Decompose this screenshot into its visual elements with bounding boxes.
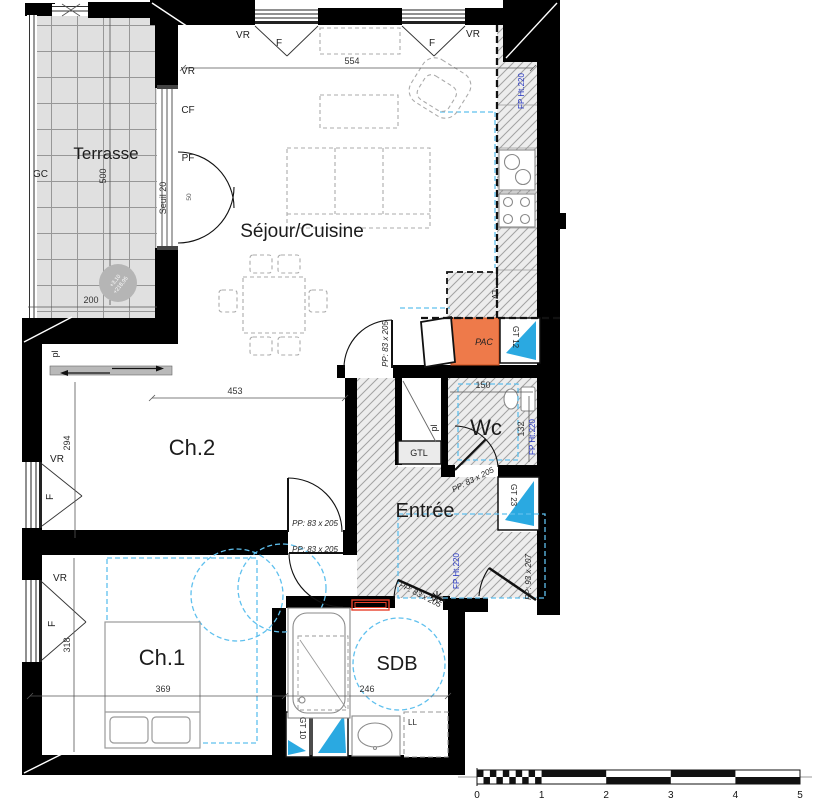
bathtub: [288, 608, 350, 718]
seuil-label: Seuil 20: [158, 182, 168, 215]
dim-wc-height: 132: [516, 421, 526, 436]
dim-bay: 50: [186, 193, 193, 201]
pl-label-ch2: pl: [50, 350, 60, 357]
sofa: [287, 148, 430, 228]
coffee-table: [320, 95, 398, 128]
dim-wc-width: 150: [475, 380, 490, 390]
door-spec-sejour: PP: 83 x 205: [381, 321, 390, 367]
scale-tick-4: 4: [733, 790, 739, 800]
door-spec-ch2: PP: 83 x 205: [292, 519, 338, 528]
scale-tick-0: 0: [474, 790, 480, 800]
ch2-placard: [50, 366, 172, 377]
floor-plan-page: +3,10 +218,95 Terrasse Séjour/Cuisine Ch…: [0, 0, 819, 800]
fp-label-wc: FP Ht.220: [528, 419, 537, 455]
fp-label-kitchen: FP Ht.220: [517, 73, 526, 109]
room-label-entree: Entrée: [396, 500, 455, 522]
gt10-duct: [286, 712, 348, 757]
room-label-ch1: Ch.1: [139, 645, 185, 670]
pac-label: PAC: [475, 337, 493, 347]
pl-label-entree: pl: [429, 424, 439, 431]
level-marker: +3,10 +218,95: [99, 264, 137, 302]
vr-label-window1: VR: [236, 30, 250, 41]
room-label-wc: Wc: [470, 415, 502, 440]
vr-label-bay: VR: [181, 66, 195, 77]
gt23-label: GT 23: [509, 484, 518, 507]
vr-label-ch1: VR: [53, 573, 67, 584]
door-spec-ch1: PP: 83 x 205: [292, 545, 338, 554]
floor-plan-drawing: +3,10 +218,95 Terrasse Séjour/Cuisine Ch…: [0, 0, 819, 800]
scale-tick-2: 2: [603, 790, 609, 800]
vr-label-window2: VR: [466, 29, 480, 40]
room-label-sdb: SDB: [376, 653, 417, 675]
gt10-label: GT 10: [298, 717, 307, 740]
fp-label-entree: FP Ht.220: [452, 553, 461, 589]
window-sejour-1: [255, 6, 318, 56]
vestibule-opening: [345, 555, 357, 596]
armchair: [404, 52, 476, 123]
room-label-terrasse: Terrasse: [73, 144, 138, 163]
dim-ch2-width: 453: [227, 386, 242, 396]
terrace-bay-glazing: [157, 85, 178, 250]
pf-label: PF: [182, 153, 195, 164]
washbasin: [352, 716, 400, 756]
ch1-bed: [105, 622, 200, 748]
dim-terrasse-width: 200: [83, 295, 98, 305]
scale-bar: 0 1 2 3 4 5: [458, 768, 812, 800]
room-label-sejour-cuisine: Séjour/Cuisine: [240, 221, 364, 242]
f-label-ch1: F: [47, 621, 58, 627]
gc-label: GC: [33, 169, 48, 180]
gt12-label: GT 12: [511, 326, 520, 349]
f-label-window1: F: [276, 38, 282, 49]
cf-label: CF: [181, 105, 194, 116]
pac-door-leaf: [421, 317, 455, 367]
scale-tick-1: 1: [539, 790, 545, 800]
scale-tick-5: 5: [797, 790, 803, 800]
dining-table: [219, 255, 327, 355]
kitchen-cooktop: [499, 194, 535, 227]
dim-ch1-height: 318: [62, 637, 72, 652]
door-spec-entrance: PP: 93 x 207: [524, 554, 533, 600]
dim-sdb-width: 246: [359, 684, 374, 694]
room-label-ch2: Ch.2: [169, 435, 215, 460]
f-label-window2: F: [429, 38, 435, 49]
kitchen-sink: [499, 150, 535, 190]
dim-sejour-width: 554: [344, 56, 359, 66]
dim-ch1-width: 369: [155, 684, 170, 694]
scale-tick-3: 3: [668, 790, 674, 800]
dim-terrasse-height: 500: [98, 168, 108, 183]
vr-label-ch2: VR: [50, 454, 64, 465]
f-label-ch2: F: [45, 494, 56, 500]
gtl-label: GTL: [410, 448, 428, 458]
ll-label: LL: [408, 718, 417, 727]
dim-ch2-height: 294: [62, 435, 72, 450]
lv-label: LV: [490, 290, 499, 300]
sejour-furniture: [219, 28, 476, 355]
sideboard: [320, 28, 400, 54]
